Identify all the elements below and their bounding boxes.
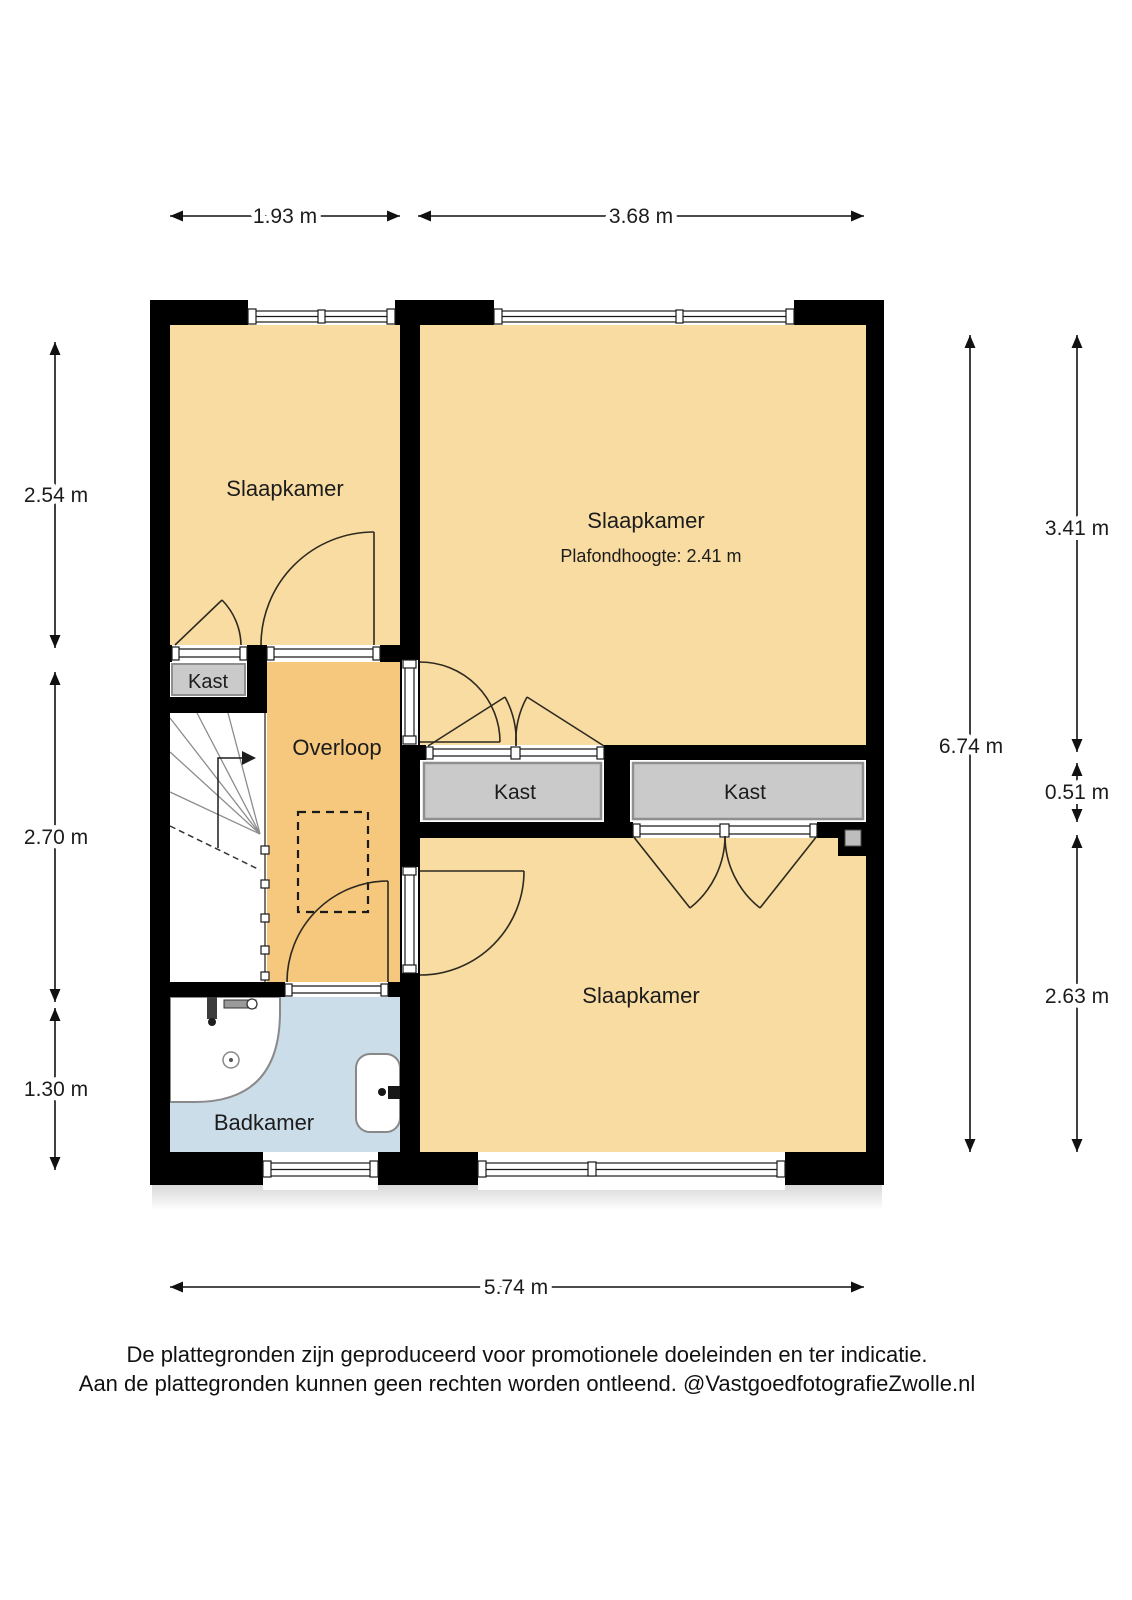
wall-left xyxy=(150,300,170,1185)
footer-line-1: De plattegronden zijn geproduceerd voor … xyxy=(126,1342,927,1367)
chimney-duct-icon xyxy=(845,830,861,846)
dim-label-right-total: 6.74 m xyxy=(939,735,1003,758)
dimension-left-1: 2.54 m xyxy=(24,342,88,648)
dimension-left-2: 2.70 m xyxy=(24,672,88,1002)
dim-label-bottom: 5.74 m xyxy=(484,1276,548,1299)
label-closet-middle: Kast xyxy=(494,781,536,804)
dim-label-top-1: 1.93 m xyxy=(253,205,317,228)
room-stairs xyxy=(170,713,263,982)
dimension-right-1: 3.41 m xyxy=(1045,335,1109,752)
dimension-top-1: 1.93 m xyxy=(170,205,400,228)
window-bathroom xyxy=(263,1152,378,1190)
dim-label-right-2: 0.51 m xyxy=(1045,781,1109,804)
label-closet-right: Kast xyxy=(724,781,766,804)
dimension-right-total: 6.74 m xyxy=(939,335,1003,1152)
door-opening-closet-middle xyxy=(426,745,604,760)
label-landing: Overloop xyxy=(292,735,381,760)
shower-drain-icon xyxy=(223,1052,239,1068)
door-opening-closet-small xyxy=(172,645,247,662)
floor-plan-svg: Slaapkamer Slaapkamer Plafondhoogte: 2.4… xyxy=(0,0,1132,1600)
door-opening-bedroom-top-left xyxy=(267,645,380,662)
footer-line-2: Aan de plattegronden kunnen geen rechten… xyxy=(79,1371,975,1396)
dimension-bottom: 5.74 m xyxy=(170,1276,864,1299)
label-closet-small: Kast xyxy=(188,671,228,693)
dimension-right-2: 0.51 m xyxy=(1045,763,1109,822)
door-opening-bedroom-bottom xyxy=(402,867,418,973)
window-bedroom-top-right xyxy=(494,300,794,325)
dimension-left-3: 1.30 m xyxy=(24,1008,88,1170)
floor-plan-page: Slaapkamer Slaapkamer Plafondhoogte: 2.4… xyxy=(0,0,1132,1600)
room-bedroom-top-right xyxy=(420,325,866,745)
dim-label-left-2: 2.70 m xyxy=(24,826,88,849)
label-bedroom-top-left: Slaapkamer xyxy=(226,476,343,501)
label-bathroom: Badkamer xyxy=(214,1110,314,1135)
door-opening-closet-right xyxy=(633,822,817,838)
dim-label-top-2: 3.68 m xyxy=(609,205,673,228)
dimension-top-2: 3.68 m xyxy=(418,205,864,228)
door-opening-bathroom xyxy=(285,982,388,997)
dim-label-right-3: 2.63 m xyxy=(1045,985,1109,1008)
door-opening-bedroom-top-right xyxy=(402,660,418,745)
dim-label-right-1: 3.41 m xyxy=(1045,517,1109,540)
wall-right xyxy=(866,300,884,1185)
wall-closet-small-south xyxy=(150,697,267,713)
dimension-right-3: 2.63 m xyxy=(1045,835,1109,1152)
window-bedroom-bottom xyxy=(478,1152,785,1190)
window-bedroom-top-left xyxy=(248,300,395,325)
dim-label-left-1: 2.54 m xyxy=(24,484,88,507)
sink-icon xyxy=(356,1054,400,1132)
label-bedroom-top-right-ceiling: Plafondhoogte: 2.41 m xyxy=(560,546,741,566)
label-bedroom-bottom: Slaapkamer xyxy=(582,983,699,1008)
room-landing xyxy=(267,662,400,982)
footer: De plattegronden zijn geproduceerd voor … xyxy=(79,1342,975,1396)
label-bedroom-top-right: Slaapkamer xyxy=(587,508,704,533)
dim-label-left-3: 1.30 m xyxy=(24,1078,88,1101)
